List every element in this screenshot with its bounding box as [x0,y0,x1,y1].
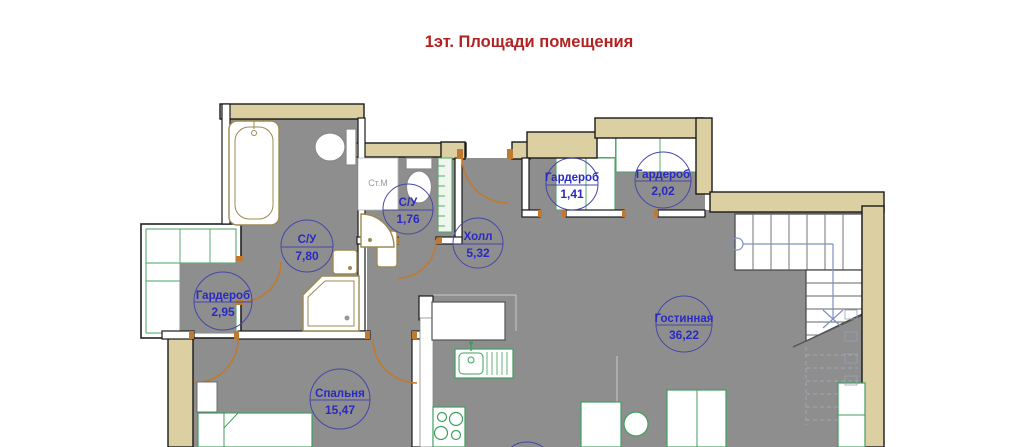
vanity-sink [333,250,357,274]
closet-141 [556,158,615,210]
bathtub [229,121,279,225]
washing-machine-label: Ст.М [368,178,388,188]
stool [624,412,648,436]
svg-text:Холл: Холл [464,231,493,243]
svg-text:15,47: 15,47 [325,403,355,417]
washing-machine: Ст.М [358,158,398,210]
bed [198,413,312,447]
floor-plan-page: Ст.М [0,0,1024,447]
towel-radiator [438,158,452,232]
svg-text:Гардероб: Гардероб [545,172,599,184]
svg-text:1,76: 1,76 [396,212,420,226]
svg-text:7,80: 7,80 [295,249,319,263]
stove [433,407,465,447]
svg-text:36,22: 36,22 [669,328,699,342]
svg-text:2,02: 2,02 [651,184,675,198]
svg-text:С/У: С/У [399,197,419,209]
svg-text:1,41: 1,41 [560,187,584,201]
cabinet [838,383,865,447]
floor-plan: Ст.М [0,0,1024,447]
svg-text:Гостинная: Гостинная [655,313,714,325]
table-small [581,402,621,447]
closet-202 [616,136,704,172]
kitchen-counter [432,302,505,340]
svg-text:С/У: С/У [298,234,318,246]
nightstand [197,382,217,412]
svg-text:Спальня: Спальня [315,388,365,400]
svg-text:2,95: 2,95 [211,305,235,319]
wardrobe-bay [141,224,244,338]
svg-text:Гардероб: Гардероб [636,169,690,181]
svg-text:Гардероб: Гардероб [196,290,250,302]
table-large [667,390,726,447]
svg-text:5,32: 5,32 [466,246,490,260]
plan-title: 1эт. Площади помещения [425,33,634,51]
